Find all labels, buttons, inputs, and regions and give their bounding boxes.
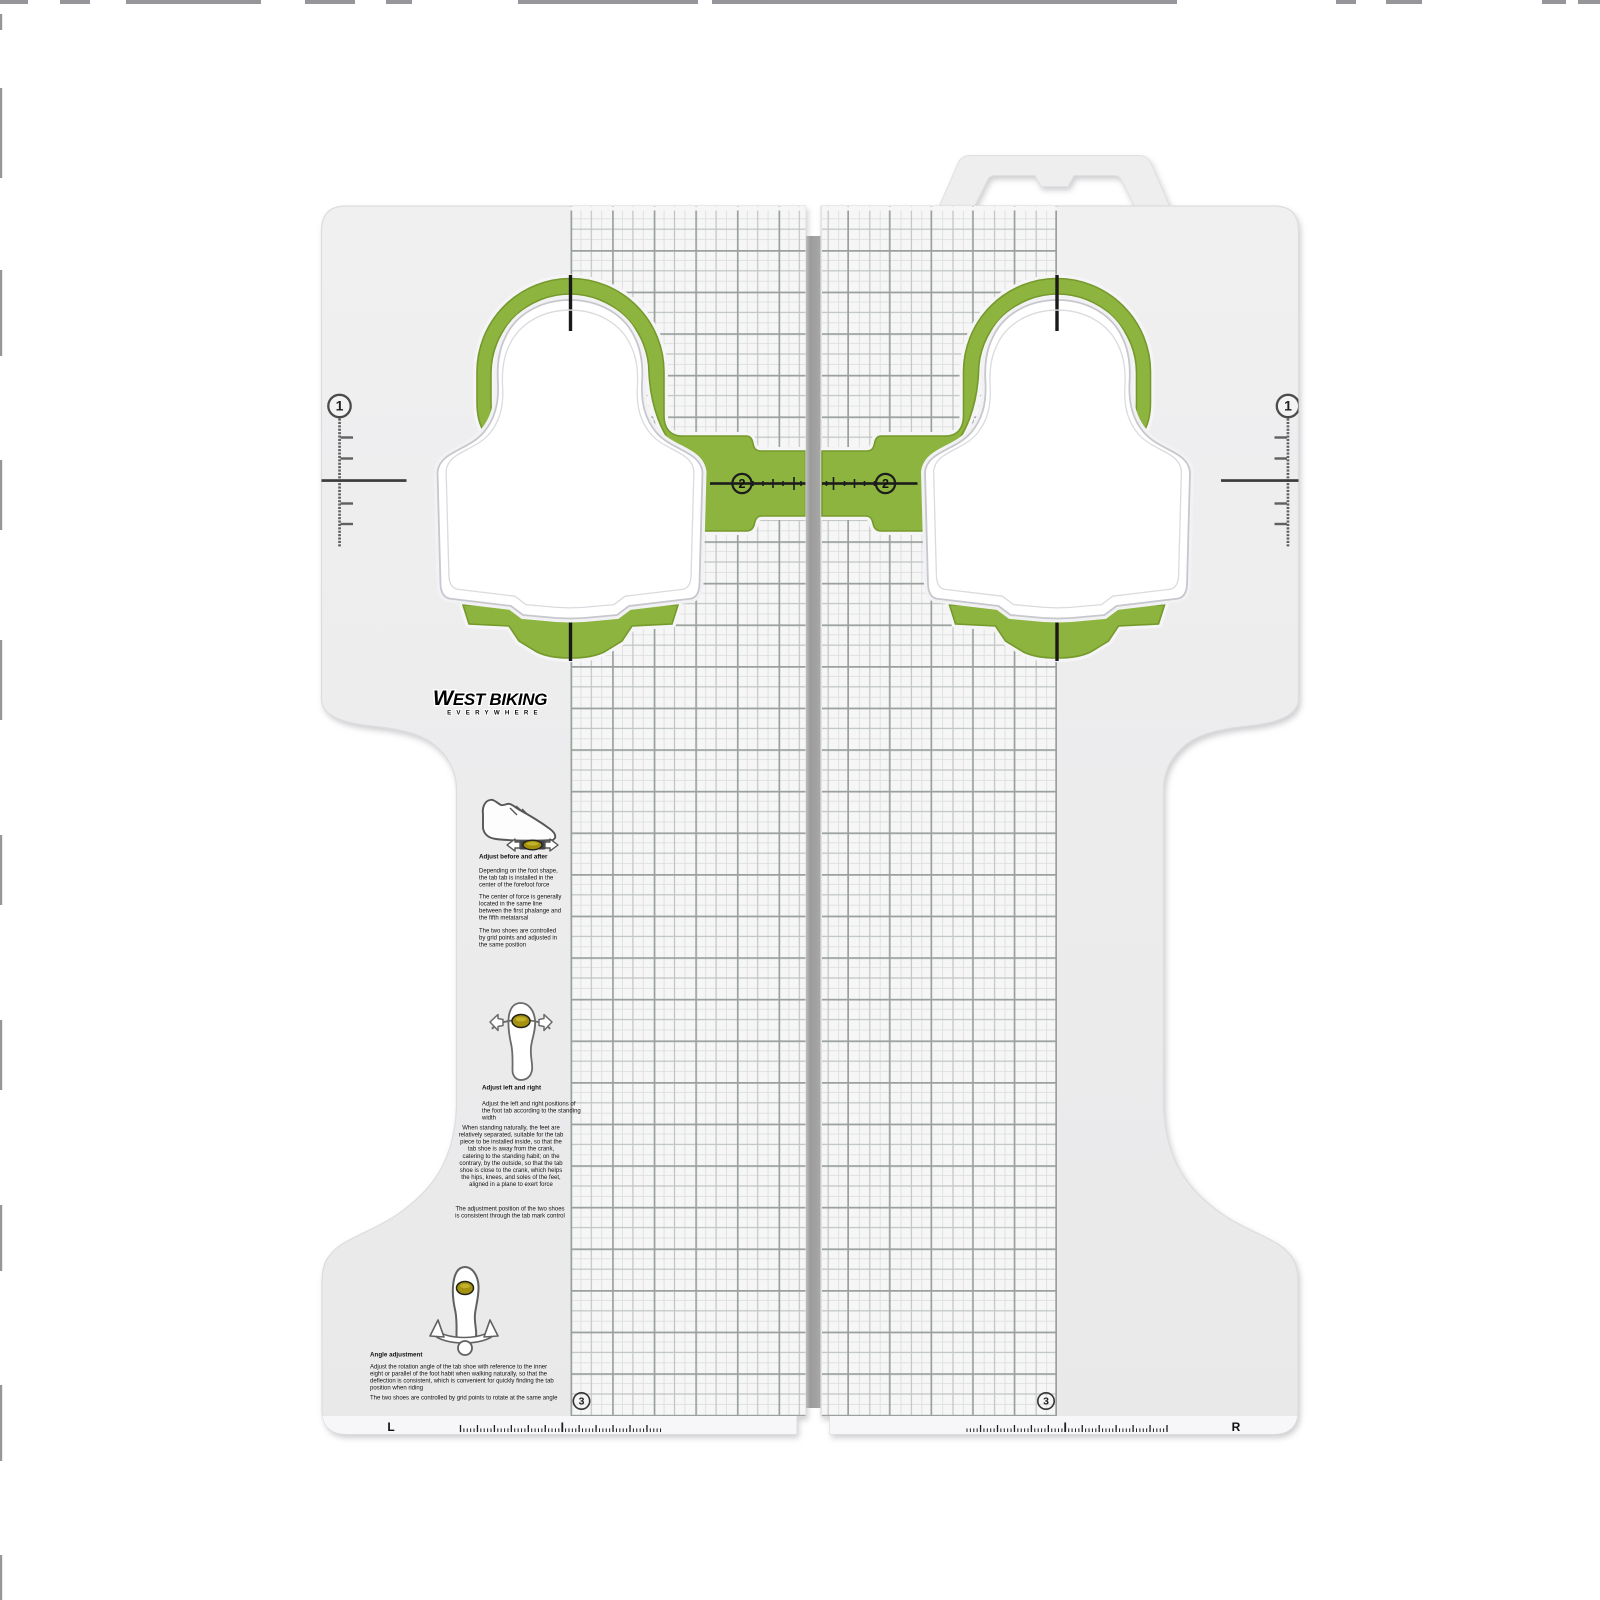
svg-text:WEST BIKING: WEST BIKING (433, 686, 547, 710)
svg-text:3: 3 (579, 1396, 585, 1408)
svg-text:2: 2 (739, 477, 746, 491)
svg-text:2: 2 (882, 477, 889, 491)
svg-text:1: 1 (1284, 398, 1292, 414)
svg-text:EVERYWHERE: EVERYWHERE (447, 710, 543, 717)
svg-text:R: R (1232, 1420, 1241, 1434)
svg-text:L: L (387, 1420, 394, 1434)
svg-text:3: 3 (1043, 1396, 1049, 1408)
svg-text:1: 1 (336, 398, 344, 414)
